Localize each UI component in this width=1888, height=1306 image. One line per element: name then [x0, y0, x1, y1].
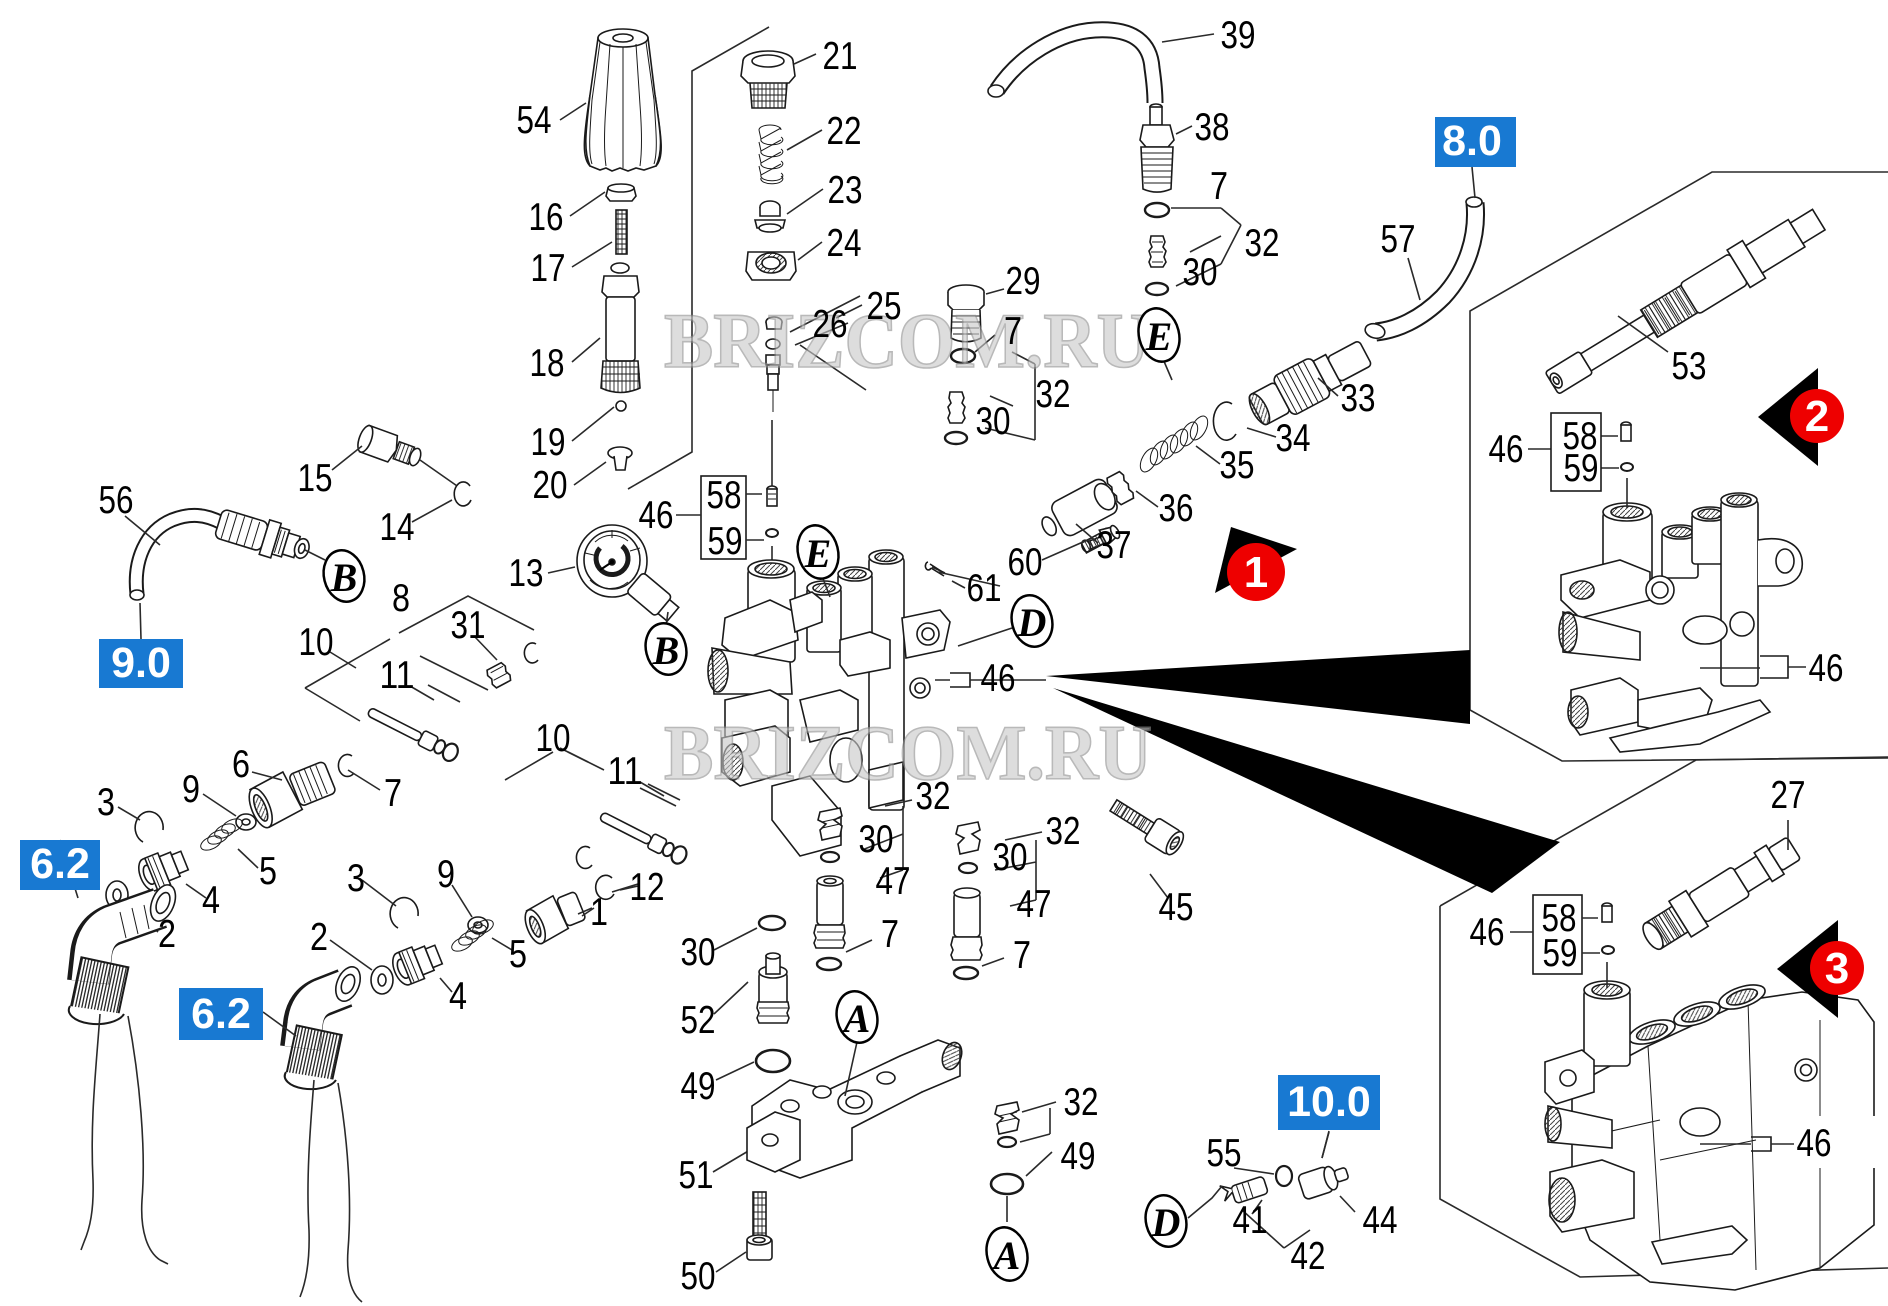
- svg-text:21: 21: [823, 35, 858, 78]
- svg-text:46: 46: [639, 494, 674, 537]
- svg-text:7: 7: [1210, 165, 1228, 208]
- svg-text:57: 57: [1381, 218, 1416, 261]
- svg-text:B: B: [652, 628, 680, 673]
- svg-text:46: 46: [1809, 647, 1844, 690]
- svg-text:19: 19: [531, 421, 566, 464]
- svg-text:22: 22: [827, 110, 862, 153]
- svg-text:9: 9: [437, 853, 455, 896]
- svg-text:32: 32: [1245, 222, 1280, 265]
- svg-text:6.2: 6.2: [191, 990, 251, 1038]
- svg-text:58: 58: [707, 474, 742, 517]
- svg-text:3: 3: [97, 781, 115, 824]
- svg-text:17: 17: [531, 247, 566, 290]
- svg-text:29: 29: [1006, 260, 1041, 303]
- svg-text:47: 47: [1017, 883, 1052, 926]
- svg-text:18: 18: [530, 342, 565, 385]
- svg-text:D: D: [1017, 600, 1047, 645]
- svg-text:39: 39: [1221, 14, 1256, 57]
- svg-text:46: 46: [981, 657, 1016, 700]
- svg-text:56: 56: [99, 479, 134, 522]
- svg-text:27: 27: [1771, 774, 1806, 817]
- svg-text:3: 3: [1825, 944, 1849, 993]
- svg-text:B: B: [330, 555, 358, 600]
- svg-text:38: 38: [1195, 106, 1230, 149]
- svg-text:2: 2: [1805, 392, 1829, 441]
- svg-text:32: 32: [916, 775, 951, 818]
- svg-text:59: 59: [1543, 932, 1578, 975]
- svg-text:46: 46: [1489, 428, 1524, 471]
- svg-text:10.0: 10.0: [1287, 1078, 1371, 1126]
- svg-text:E: E: [1145, 314, 1173, 359]
- svg-text:61: 61: [967, 567, 1002, 610]
- svg-text:13: 13: [509, 552, 544, 595]
- svg-text:14: 14: [380, 506, 415, 549]
- svg-text:4: 4: [202, 879, 220, 922]
- svg-text:41: 41: [1233, 1199, 1268, 1242]
- svg-text:5: 5: [509, 933, 527, 976]
- svg-text:23: 23: [828, 169, 863, 212]
- svg-text:7: 7: [1013, 934, 1031, 977]
- svg-text:52: 52: [681, 999, 716, 1042]
- svg-text:11: 11: [608, 750, 643, 793]
- svg-text:30: 30: [681, 931, 716, 974]
- svg-text:30: 30: [859, 818, 894, 861]
- svg-text:15: 15: [298, 457, 333, 500]
- svg-text:55: 55: [1207, 1132, 1242, 1175]
- svg-text:42: 42: [1291, 1235, 1326, 1278]
- svg-text:20: 20: [533, 464, 568, 507]
- svg-text:49: 49: [1061, 1135, 1096, 1178]
- svg-text:60: 60: [1008, 541, 1043, 584]
- svg-text:10: 10: [299, 621, 334, 664]
- svg-text:47: 47: [876, 860, 911, 903]
- svg-text:1: 1: [1244, 548, 1268, 597]
- svg-text:A: A: [841, 996, 871, 1041]
- svg-text:4: 4: [449, 975, 467, 1018]
- svg-text:6: 6: [232, 743, 250, 786]
- svg-text:50: 50: [681, 1255, 716, 1298]
- svg-text:7: 7: [1004, 310, 1022, 353]
- svg-text:2: 2: [158, 913, 176, 956]
- svg-text:9.0: 9.0: [111, 639, 171, 687]
- svg-text:1: 1: [590, 891, 608, 934]
- svg-text:59: 59: [708, 520, 743, 563]
- svg-text:8.0: 8.0: [1442, 117, 1502, 165]
- svg-text:10: 10: [536, 717, 571, 760]
- svg-text:32: 32: [1046, 810, 1081, 853]
- svg-text:45: 45: [1159, 886, 1194, 929]
- svg-text:54: 54: [517, 99, 552, 142]
- svg-text:31: 31: [451, 604, 486, 647]
- svg-text:6.2: 6.2: [30, 840, 90, 888]
- svg-text:26: 26: [813, 303, 848, 346]
- svg-text:A: A: [991, 1233, 1021, 1278]
- svg-text:8: 8: [392, 577, 410, 620]
- svg-text:44: 44: [1363, 1199, 1398, 1242]
- svg-text:46: 46: [1470, 911, 1505, 954]
- svg-text:30: 30: [1183, 251, 1218, 294]
- svg-text:30: 30: [976, 400, 1011, 443]
- svg-text:E: E: [804, 531, 832, 576]
- svg-text:9: 9: [182, 768, 200, 811]
- svg-text:32: 32: [1064, 1081, 1099, 1124]
- svg-text:36: 36: [1159, 487, 1194, 530]
- svg-text:59: 59: [1564, 447, 1599, 490]
- svg-text:33: 33: [1341, 377, 1376, 420]
- svg-text:34: 34: [1276, 417, 1311, 460]
- svg-text:D: D: [1151, 1200, 1181, 1245]
- svg-text:16: 16: [529, 196, 564, 239]
- svg-text:49: 49: [681, 1065, 716, 1108]
- svg-text:11: 11: [380, 654, 415, 697]
- svg-text:5: 5: [259, 850, 277, 893]
- svg-text:53: 53: [1672, 345, 1707, 388]
- svg-text:51: 51: [679, 1154, 714, 1197]
- svg-text:46: 46: [1797, 1122, 1832, 1165]
- svg-text:12: 12: [630, 866, 665, 909]
- svg-text:BRIZCOM.RU: BRIZCOM.RU: [664, 297, 1150, 384]
- svg-text:BRIZCOM.RU: BRIZCOM.RU: [664, 709, 1152, 796]
- svg-text:3: 3: [347, 857, 365, 900]
- svg-text:37: 37: [1097, 524, 1132, 567]
- svg-text:35: 35: [1220, 444, 1255, 487]
- svg-text:7: 7: [384, 772, 402, 815]
- svg-text:2: 2: [310, 916, 328, 959]
- svg-text:25: 25: [867, 285, 902, 328]
- svg-text:24: 24: [827, 222, 862, 265]
- svg-text:7: 7: [881, 913, 899, 956]
- svg-text:30: 30: [993, 836, 1028, 879]
